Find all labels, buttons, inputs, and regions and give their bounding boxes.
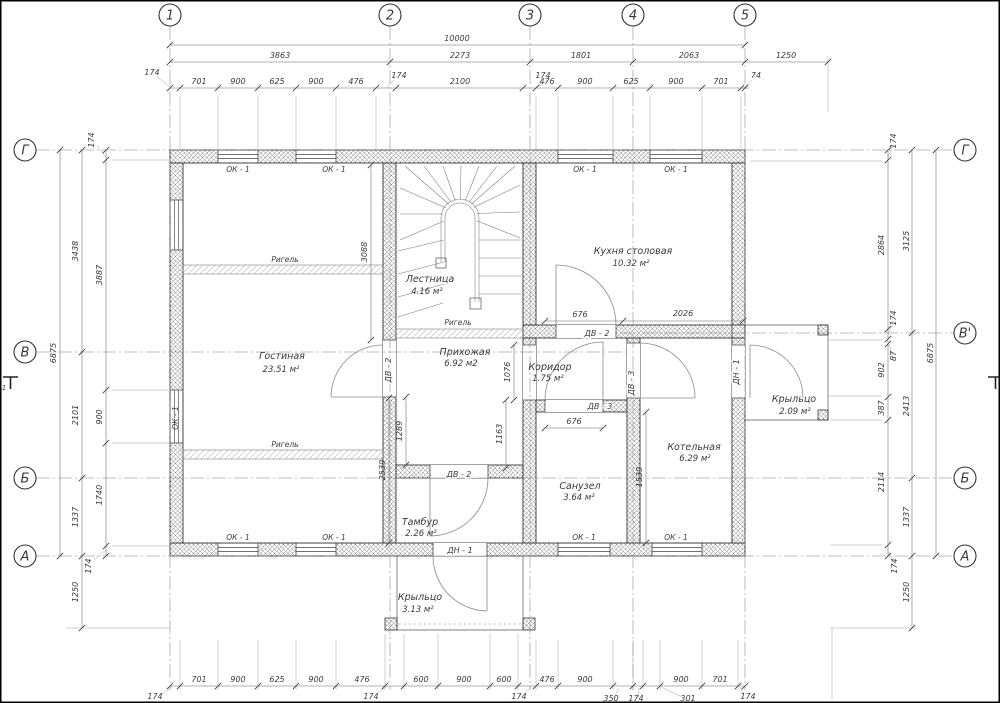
- drawing-border: [1, 1, 1000, 703]
- window-tag: ОК - 1: [322, 533, 345, 542]
- window-tag: ОК - 1: [572, 533, 595, 542]
- room-living-name: Гостиная: [259, 351, 305, 362]
- dim-interior: 2539: [378, 460, 387, 480]
- dim-interior: 1539: [635, 467, 644, 487]
- room-stairs-name: Лестница: [405, 274, 455, 285]
- axis-label: А: [960, 550, 970, 565]
- porch-column: [818, 410, 828, 420]
- dim: 476: [354, 675, 369, 684]
- door-living: [331, 345, 383, 397]
- dim: 3438: [71, 241, 80, 261]
- room-porch-bottom-area: 3.13 м²: [402, 605, 434, 615]
- porch-column: [385, 618, 397, 630]
- beam-label: Ригель: [444, 318, 471, 327]
- dim: 625: [269, 675, 284, 684]
- dim: 701: [712, 675, 727, 684]
- room-kitchen-name: Кухня столовая: [594, 246, 673, 257]
- dim-leader: 174: [890, 558, 899, 573]
- dim: 900: [668, 77, 683, 86]
- dim-interior: 676: [566, 417, 581, 426]
- dim: 2114: [877, 472, 886, 492]
- room-bathroom-name: Санузел: [559, 481, 600, 492]
- dim: 2063: [679, 51, 699, 60]
- dim: 900: [95, 409, 104, 424]
- room-boiler-area: 6.29 м²: [679, 454, 711, 464]
- dim-leader: 174: [889, 133, 898, 148]
- dim-leader: 174: [391, 71, 406, 80]
- room-kitchen-area: 10.32 м²: [613, 259, 650, 269]
- dim-leader: 174: [535, 71, 550, 80]
- door-vestibule: [430, 478, 488, 536]
- axis-label: В: [21, 346, 30, 361]
- section-mark-label: 1: [2, 384, 6, 392]
- room-porch-bottom-name: Крыльцо: [398, 592, 442, 603]
- dim: 1337: [71, 506, 80, 527]
- dim: 1250: [71, 582, 80, 602]
- dim: 1337: [902, 506, 911, 527]
- dim: 902: [877, 362, 886, 377]
- axis-label: Б: [21, 472, 30, 487]
- door-boiler: [640, 343, 695, 398]
- axis-label: 2: [386, 9, 394, 24]
- dim: 900: [308, 77, 323, 86]
- dim-leader: 174: [889, 310, 898, 325]
- dim: 900: [456, 675, 471, 684]
- beam-strip: [183, 450, 383, 459]
- dim: 900: [577, 77, 592, 86]
- dim-overall-left: 6875: [49, 343, 58, 363]
- floor-plan-page: 10000 3863 2273 1801 2063 1250 701 900 6…: [0, 0, 1000, 703]
- dim-overall-right: 6875: [926, 343, 935, 363]
- axis-label: 5: [741, 9, 749, 24]
- dim: 1801: [571, 51, 591, 60]
- window-tag: ОК - 1: [322, 165, 345, 174]
- dim: 1740: [95, 485, 104, 505]
- dim: 900: [308, 675, 323, 684]
- door-tag: ДВ - 3: [627, 371, 636, 397]
- dim: 3887: [95, 264, 104, 285]
- dim: 476: [539, 675, 554, 684]
- axis-label: 1: [166, 9, 174, 24]
- dim: 3863: [270, 51, 290, 60]
- dim-leader: 74: [751, 71, 761, 80]
- dim-interior: 676: [572, 310, 587, 319]
- door-tag: ДВ - 2: [584, 329, 610, 338]
- dim: 900: [230, 675, 245, 684]
- door-tag: ДН - 1: [732, 359, 741, 385]
- room-vestibule-area: 2.26 м²: [405, 529, 437, 539]
- axis-label: 4: [629, 9, 637, 24]
- floor-plan-drawing: 10000 3863 2273 1801 2063 1250 701 900 6…: [0, 0, 1000, 703]
- dim-interior: 3088: [360, 242, 369, 262]
- dim: 2101: [71, 405, 80, 425]
- room-hall-area: 6.92 м2: [444, 359, 477, 369]
- dim: 600: [413, 675, 428, 684]
- dim: 600: [496, 675, 511, 684]
- dim-leader: 174: [87, 132, 96, 147]
- dim-overall-top: 10000: [444, 34, 469, 43]
- axis-bubbles: 1 2 3 4 5 Г В Б А Г В' Б А: [14, 4, 976, 567]
- dim: 3125: [902, 231, 911, 251]
- door-entry-right: [750, 345, 803, 398]
- section-marks: 1 1: [2, 377, 1000, 392]
- room-porch-right-name: Крыльцо: [772, 394, 816, 405]
- dim: 1250: [902, 582, 911, 602]
- dim: 625: [269, 77, 284, 86]
- room-living-area: 23.51 м²: [263, 365, 300, 375]
- window-tag: ОК - 1: [573, 165, 596, 174]
- beam-label: Ригель: [271, 255, 298, 264]
- dim-leader: 174: [147, 692, 162, 701]
- dim: 900: [673, 675, 688, 684]
- window-tag: ОК - 1: [226, 165, 249, 174]
- dim-leader: 174: [740, 692, 755, 701]
- axis-label: А: [20, 550, 30, 565]
- dim: 701: [191, 675, 206, 684]
- dim: 900: [577, 675, 592, 684]
- dim: 701: [191, 77, 206, 86]
- room-boiler-name: Котельная: [667, 442, 721, 453]
- room-porch-right-area: 2.09 м²: [779, 407, 811, 417]
- dim-leader: 174: [363, 692, 378, 701]
- axis-label: В': [959, 327, 972, 342]
- dim: 2413: [902, 396, 911, 416]
- dim-leader: 174: [84, 558, 93, 573]
- beam-strip: [183, 265, 383, 274]
- window-tag: ОК - 1: [226, 533, 249, 542]
- dim: 476: [348, 77, 363, 86]
- dim-interior: 1076: [503, 362, 512, 382]
- dim: 701: [713, 77, 728, 86]
- room-bathroom-area: 3.64 м²: [563, 493, 595, 503]
- window-tag: ОК - 1: [171, 406, 180, 429]
- door-tag: ДН - 1: [446, 546, 472, 555]
- dimension-ticks: [57, 42, 939, 689]
- dim-interior: 2026: [673, 309, 693, 318]
- dim: 2273: [450, 51, 470, 60]
- window-tag: ОК - 1: [664, 165, 687, 174]
- dim: 387: [877, 399, 886, 415]
- dim-leader: 174: [144, 68, 159, 77]
- room-vestibule-name: Тамбур: [402, 517, 438, 528]
- room-hall-name: Прихожая: [440, 347, 491, 358]
- dim: 625: [623, 77, 638, 86]
- dim: 1250: [776, 51, 796, 60]
- axis-label: 3: [526, 9, 534, 24]
- dim: 2100: [450, 77, 470, 86]
- dim: 2864: [877, 235, 886, 255]
- beam-strip: [396, 329, 523, 338]
- dim-interior: 1163: [495, 424, 504, 444]
- axis-label: Б: [961, 472, 970, 487]
- room-stairs-area: 4.16 м²: [411, 287, 443, 297]
- dimension-lines: [57, 42, 939, 689]
- dim-interior: 1289: [395, 421, 404, 441]
- porch-column: [818, 325, 828, 335]
- porch-column: [523, 618, 535, 630]
- dim-leader: 87: [889, 350, 898, 361]
- room-corridor-name: Коридор: [528, 362, 571, 373]
- door-tag: ДВ - 2: [446, 470, 472, 479]
- door-tag: ДВ - 3: [587, 402, 613, 411]
- window-tag: ОК - 1: [664, 533, 687, 542]
- dim: 900: [230, 77, 245, 86]
- door-tag: ДВ - 2: [384, 358, 393, 384]
- room-corridor-area: 1.75 м²: [532, 374, 564, 384]
- beam-label: Ригель: [271, 440, 298, 449]
- dim-leader: 174: [511, 692, 526, 701]
